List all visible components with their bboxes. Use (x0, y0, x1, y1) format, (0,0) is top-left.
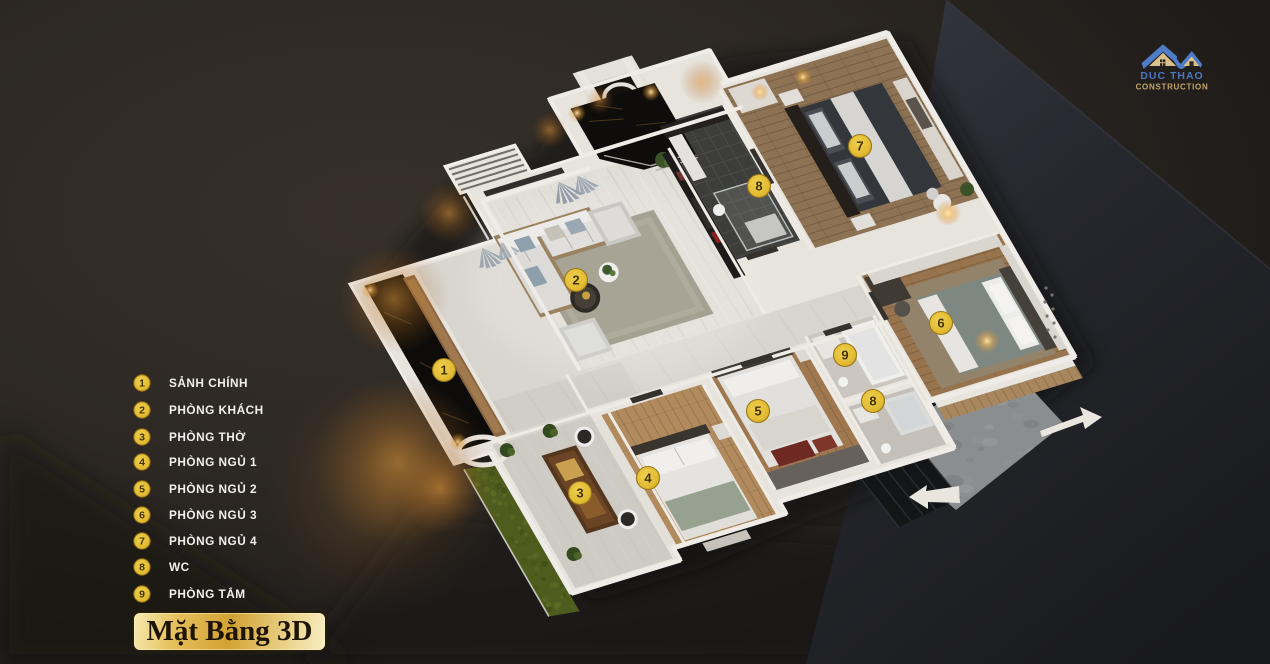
svg-text:9: 9 (841, 348, 848, 363)
svg-text:6: 6 (139, 510, 145, 522)
svg-text:WC: WC (169, 560, 190, 574)
svg-text:PHÒNG THỜ: PHÒNG THỜ (169, 430, 246, 444)
svg-text:5: 5 (754, 404, 761, 419)
svg-text:6: 6 (937, 316, 944, 331)
svg-text:7: 7 (856, 139, 863, 154)
svg-text:CONSTRUCTION: CONSTRUCTION (1136, 83, 1209, 92)
svg-text:PHÒNG NGỦ 2: PHÒNG NGỦ 2 (169, 482, 257, 496)
svg-text:4: 4 (139, 457, 145, 469)
svg-text:1: 1 (139, 378, 145, 390)
svg-text:PHÒNG NGỦ 3: PHÒNG NGỦ 3 (169, 508, 257, 522)
svg-text:SẢNH CHÍNH: SẢNH CHÍNH (169, 376, 248, 390)
svg-text:3: 3 (576, 486, 583, 501)
svg-text:PHÒNG NGỦ 4: PHÒNG NGỦ 4 (169, 534, 257, 548)
svg-text:8: 8 (755, 179, 762, 194)
svg-text:4: 4 (644, 471, 652, 486)
svg-text:5: 5 (139, 484, 145, 496)
svg-text:PHÒNG TẮM: PHÒNG TẮM (169, 587, 246, 601)
svg-text:PHÒNG KHÁCH: PHÒNG KHÁCH (169, 403, 264, 417)
svg-text:2: 2 (139, 405, 145, 417)
svg-text:9: 9 (139, 589, 145, 601)
svg-text:3: 3 (139, 432, 145, 444)
svg-text:DUC THAO: DUC THAO (1140, 70, 1203, 82)
svg-text:PHÒNG NGỦ 1: PHÒNG NGỦ 1 (169, 455, 257, 469)
svg-text:2: 2 (572, 273, 579, 288)
svg-text:1: 1 (440, 363, 447, 378)
svg-text:7: 7 (139, 536, 145, 548)
svg-text:8: 8 (869, 394, 876, 409)
svg-text:8: 8 (139, 562, 145, 574)
